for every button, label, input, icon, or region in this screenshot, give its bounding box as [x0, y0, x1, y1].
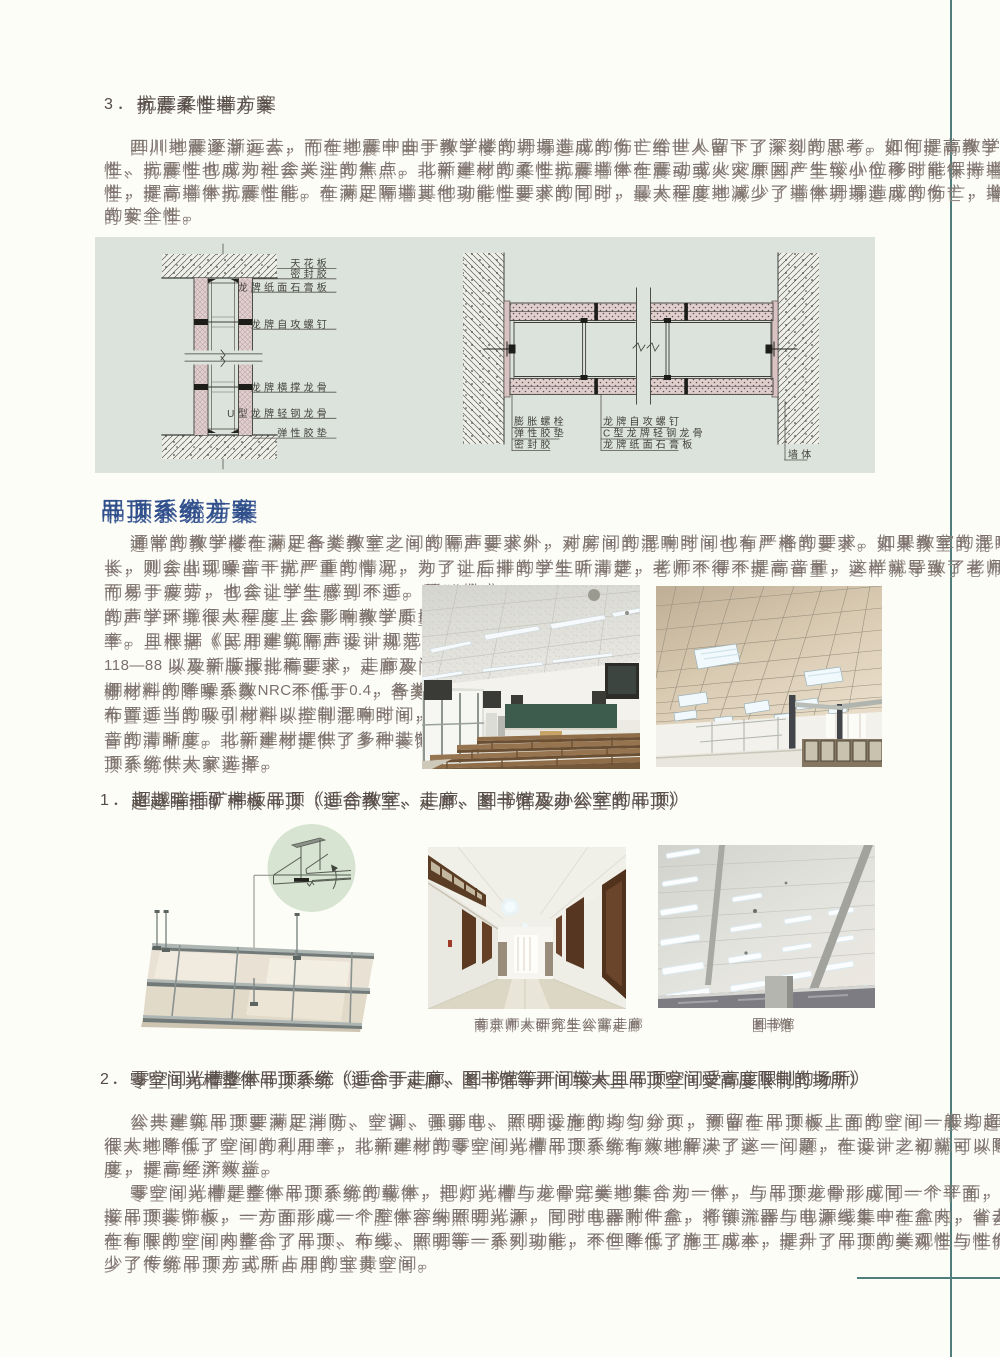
svg-text:龙牌纸面石膏板: 龙牌纸面石膏板	[603, 438, 695, 451]
svg-text:弹性胶垫: 弹性胶垫	[277, 427, 330, 440]
svg-text:密封胶: 密封胶	[514, 438, 554, 451]
svg-text:弹性胶垫: 弹性胶垫	[514, 427, 567, 440]
svg-text:密封胶: 密封胶	[290, 268, 330, 281]
svg-text:U型龙牌轻钢龙骨: U型龙牌轻钢龙骨	[227, 407, 330, 420]
svg-text:龙牌纸面石膏板: 龙牌纸面石膏板	[238, 281, 330, 294]
svg-text:龙牌横撑龙骨: 龙牌横撑龙骨	[251, 381, 330, 394]
svg-text:墙体: 墙体	[788, 448, 814, 461]
svg-text:膨胀螺栓: 膨胀螺栓	[514, 415, 567, 428]
svg-text:龙牌自攻螺钉: 龙牌自攻螺钉	[251, 318, 330, 331]
svg-text:C型龙牌轻钢龙骨: C型龙牌轻钢龙骨	[603, 427, 706, 440]
svg-text:龙牌自攻螺钉: 龙牌自攻螺钉	[603, 415, 682, 428]
svg-text:天花板: 天花板	[290, 257, 330, 270]
